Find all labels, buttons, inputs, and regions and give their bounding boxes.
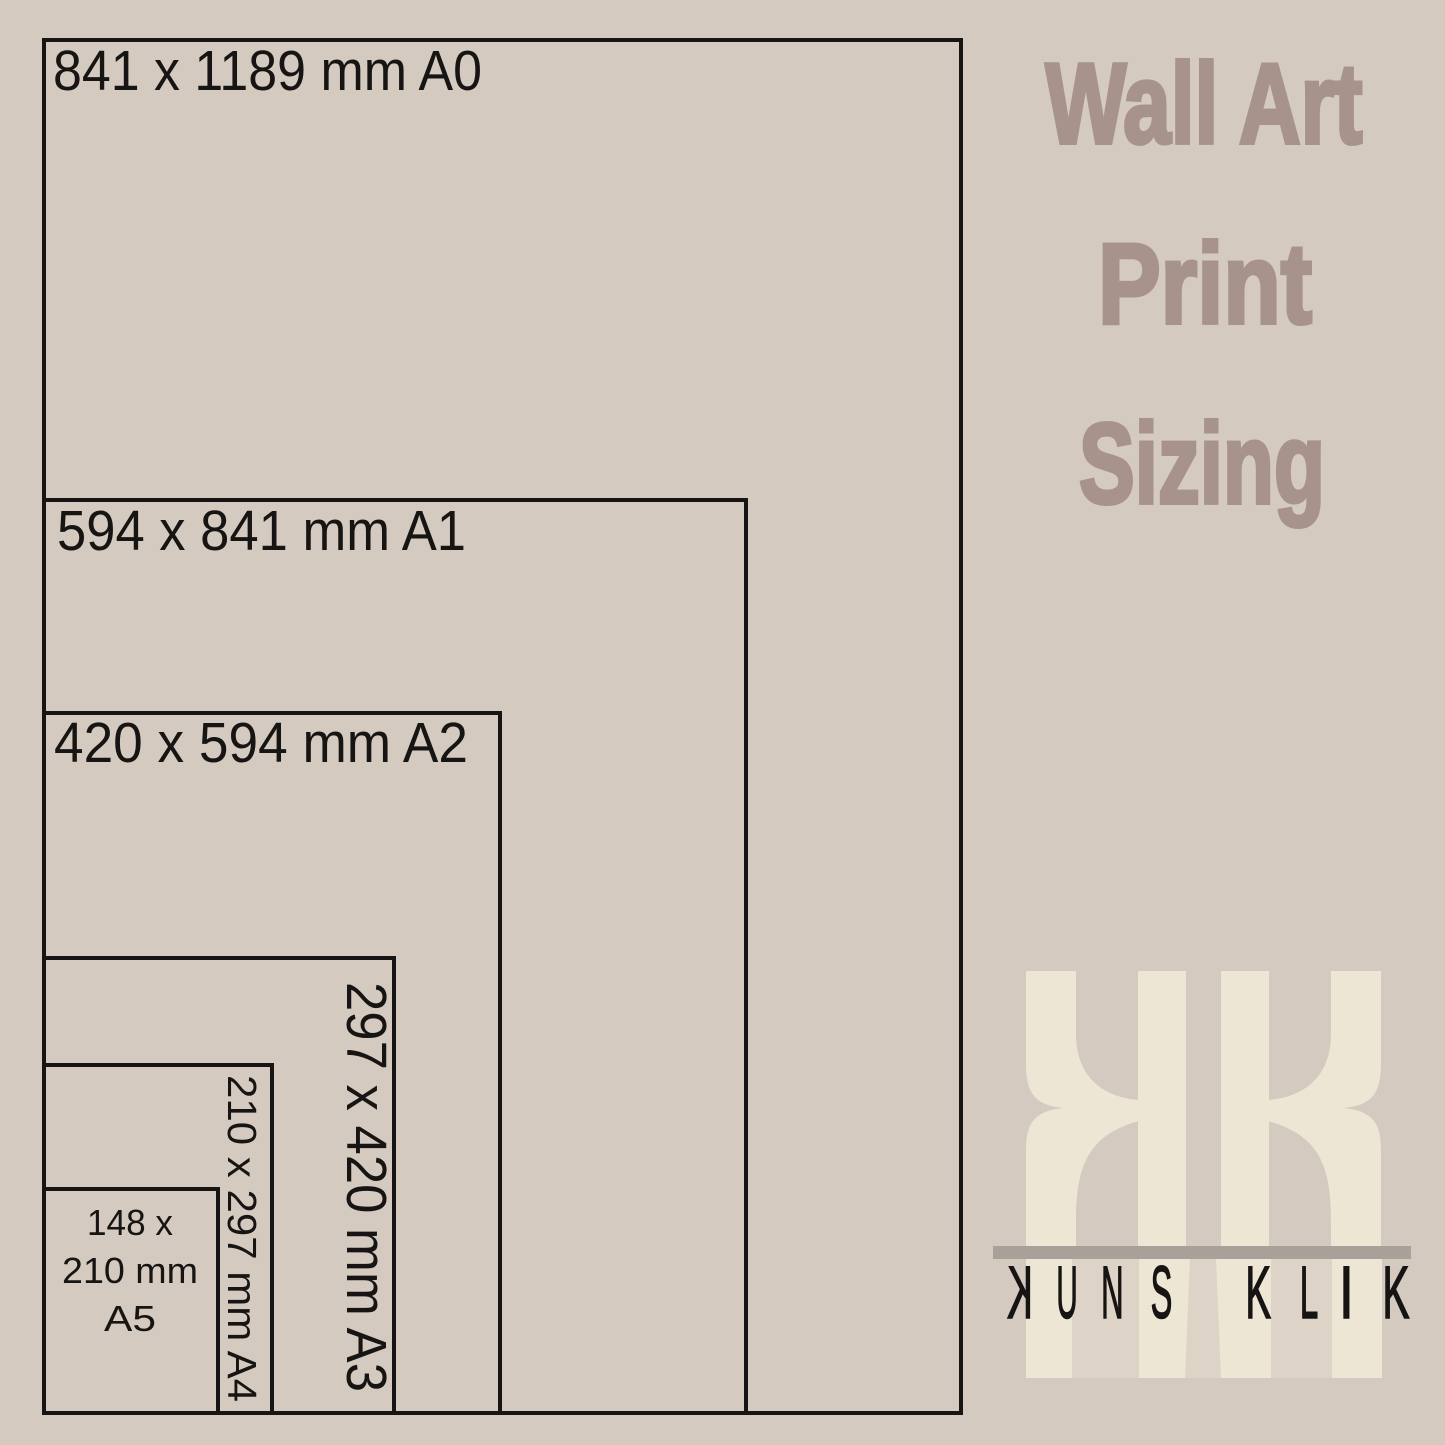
svg-text:Sizing: Sizing bbox=[1079, 401, 1325, 528]
svg-text:Wall Art: Wall Art bbox=[1046, 41, 1363, 168]
svg-text:L: L bbox=[1300, 1252, 1319, 1335]
svg-text:U: U bbox=[1056, 1251, 1077, 1334]
svg-text:A5: A5 bbox=[104, 1298, 156, 1339]
svg-text:841 x 1189 mm A0: 841 x 1189 mm A0 bbox=[53, 39, 482, 103]
svg-text:I: I bbox=[1339, 1251, 1354, 1334]
svg-text:420 x 594 mm A2: 420 x 594 mm A2 bbox=[54, 711, 468, 775]
svg-text:210 x 297 mm A4: 210 x 297 mm A4 bbox=[219, 1075, 265, 1402]
svg-text:Print: Print bbox=[1098, 221, 1312, 348]
svg-text:S: S bbox=[1151, 1252, 1173, 1335]
svg-text:594 x 841 mm A1: 594 x 841 mm A1 bbox=[57, 499, 466, 563]
svg-text:K: K bbox=[1382, 1251, 1409, 1334]
svg-text:K: K bbox=[1245, 1253, 1271, 1335]
svg-text:297 x 420 mm A3: 297 x 420 mm A3 bbox=[334, 982, 398, 1392]
svg-text:K: K bbox=[1007, 1253, 1033, 1335]
svg-text:148 x: 148 x bbox=[87, 1202, 173, 1243]
svg-text:210 mm: 210 mm bbox=[62, 1250, 198, 1291]
svg-text:N: N bbox=[1101, 1253, 1123, 1335]
